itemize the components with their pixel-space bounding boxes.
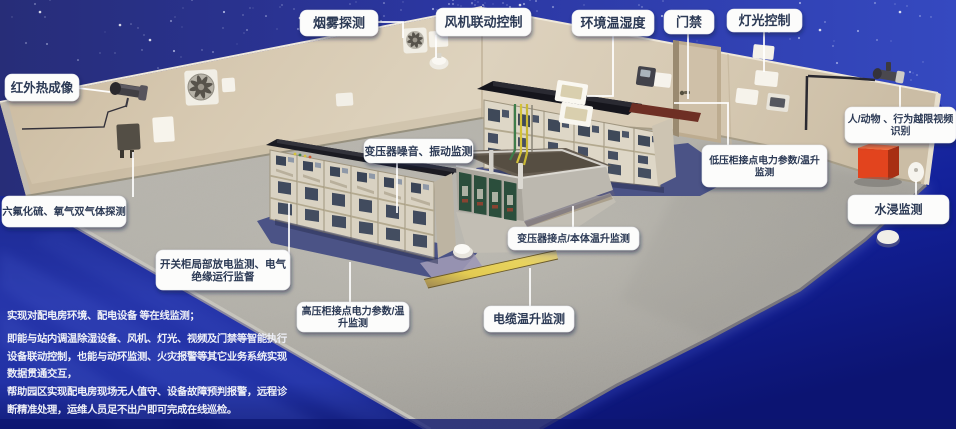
svg-text:变压器接点/本体温升监测: 变压器接点/本体温升监测: [517, 232, 630, 245]
svg-text:实现对配电房环境、配电设备 等在线监测；: 实现对配电房环境、配电设备 等在线监测；: [7, 309, 200, 322]
svg-text:风机联动控制: 风机联动控制: [444, 15, 522, 30]
svg-text:人/动物 、行为越限视频: 人/动物 、行为越限视频: [848, 113, 954, 126]
svg-text:帮助园区实现配电房现场无人值守、设备故障预判报警，远程诊: 帮助园区实现配电房现场无人值守、设备故障预判报警，远程诊: [7, 385, 288, 398]
svg-text:即能与站内调温除湿设备、风机、灯光、视频及门禁等智能执行: 即能与站内调温除湿设备、风机、灯光、视频及门禁等智能执行: [7, 332, 288, 345]
svg-text:绝缘运行监督: 绝缘运行监督: [192, 270, 255, 283]
svg-text:数据贯通交互，: 数据贯通交互，: [7, 367, 77, 380]
svg-text:灯光控制: 灯光控制: [738, 13, 790, 28]
svg-text:低压柜接点电力参数/温升: 低压柜接点电力参数/温升: [708, 154, 820, 167]
svg-text:识别: 识别: [891, 125, 911, 138]
svg-text:六氟化硫、氧气双气体探测: 六氟化硫、氧气双气体探测: [2, 205, 126, 218]
svg-text:环境温湿度: 环境温湿度: [580, 16, 646, 31]
svg-text:水浸监测: 水浸监测: [874, 202, 922, 217]
svg-text:设备联动控制，也能与动环监测、火灾报警等其它业务系统实现: 设备联动控制，也能与动环监测、火灾报警等其它业务系统实现: [7, 350, 288, 363]
svg-text:烟雾探测: 烟雾探测: [313, 16, 365, 31]
svg-text:电缆温升监测: 电缆温升监测: [493, 311, 565, 326]
svg-text:断精准处理，运维人员足不出户即可完成在线巡检。: 断精准处理，运维人员足不出户即可完成在线巡检。: [7, 403, 237, 416]
svg-text:门禁: 门禁: [676, 15, 702, 30]
svg-text:开关柜局部放电监测、电气: 开关柜局部放电监测、电气: [160, 257, 286, 270]
svg-text:红外热成像: 红外热成像: [11, 80, 74, 95]
svg-text:监测: 监测: [755, 165, 775, 178]
svg-text:高压柜接点电力参数/温: 高压柜接点电力参数/温: [302, 305, 405, 318]
svg-text:变压器噪音、振动监测: 变压器噪音、振动监测: [365, 144, 473, 158]
svg-text:升监测: 升监测: [338, 317, 368, 330]
